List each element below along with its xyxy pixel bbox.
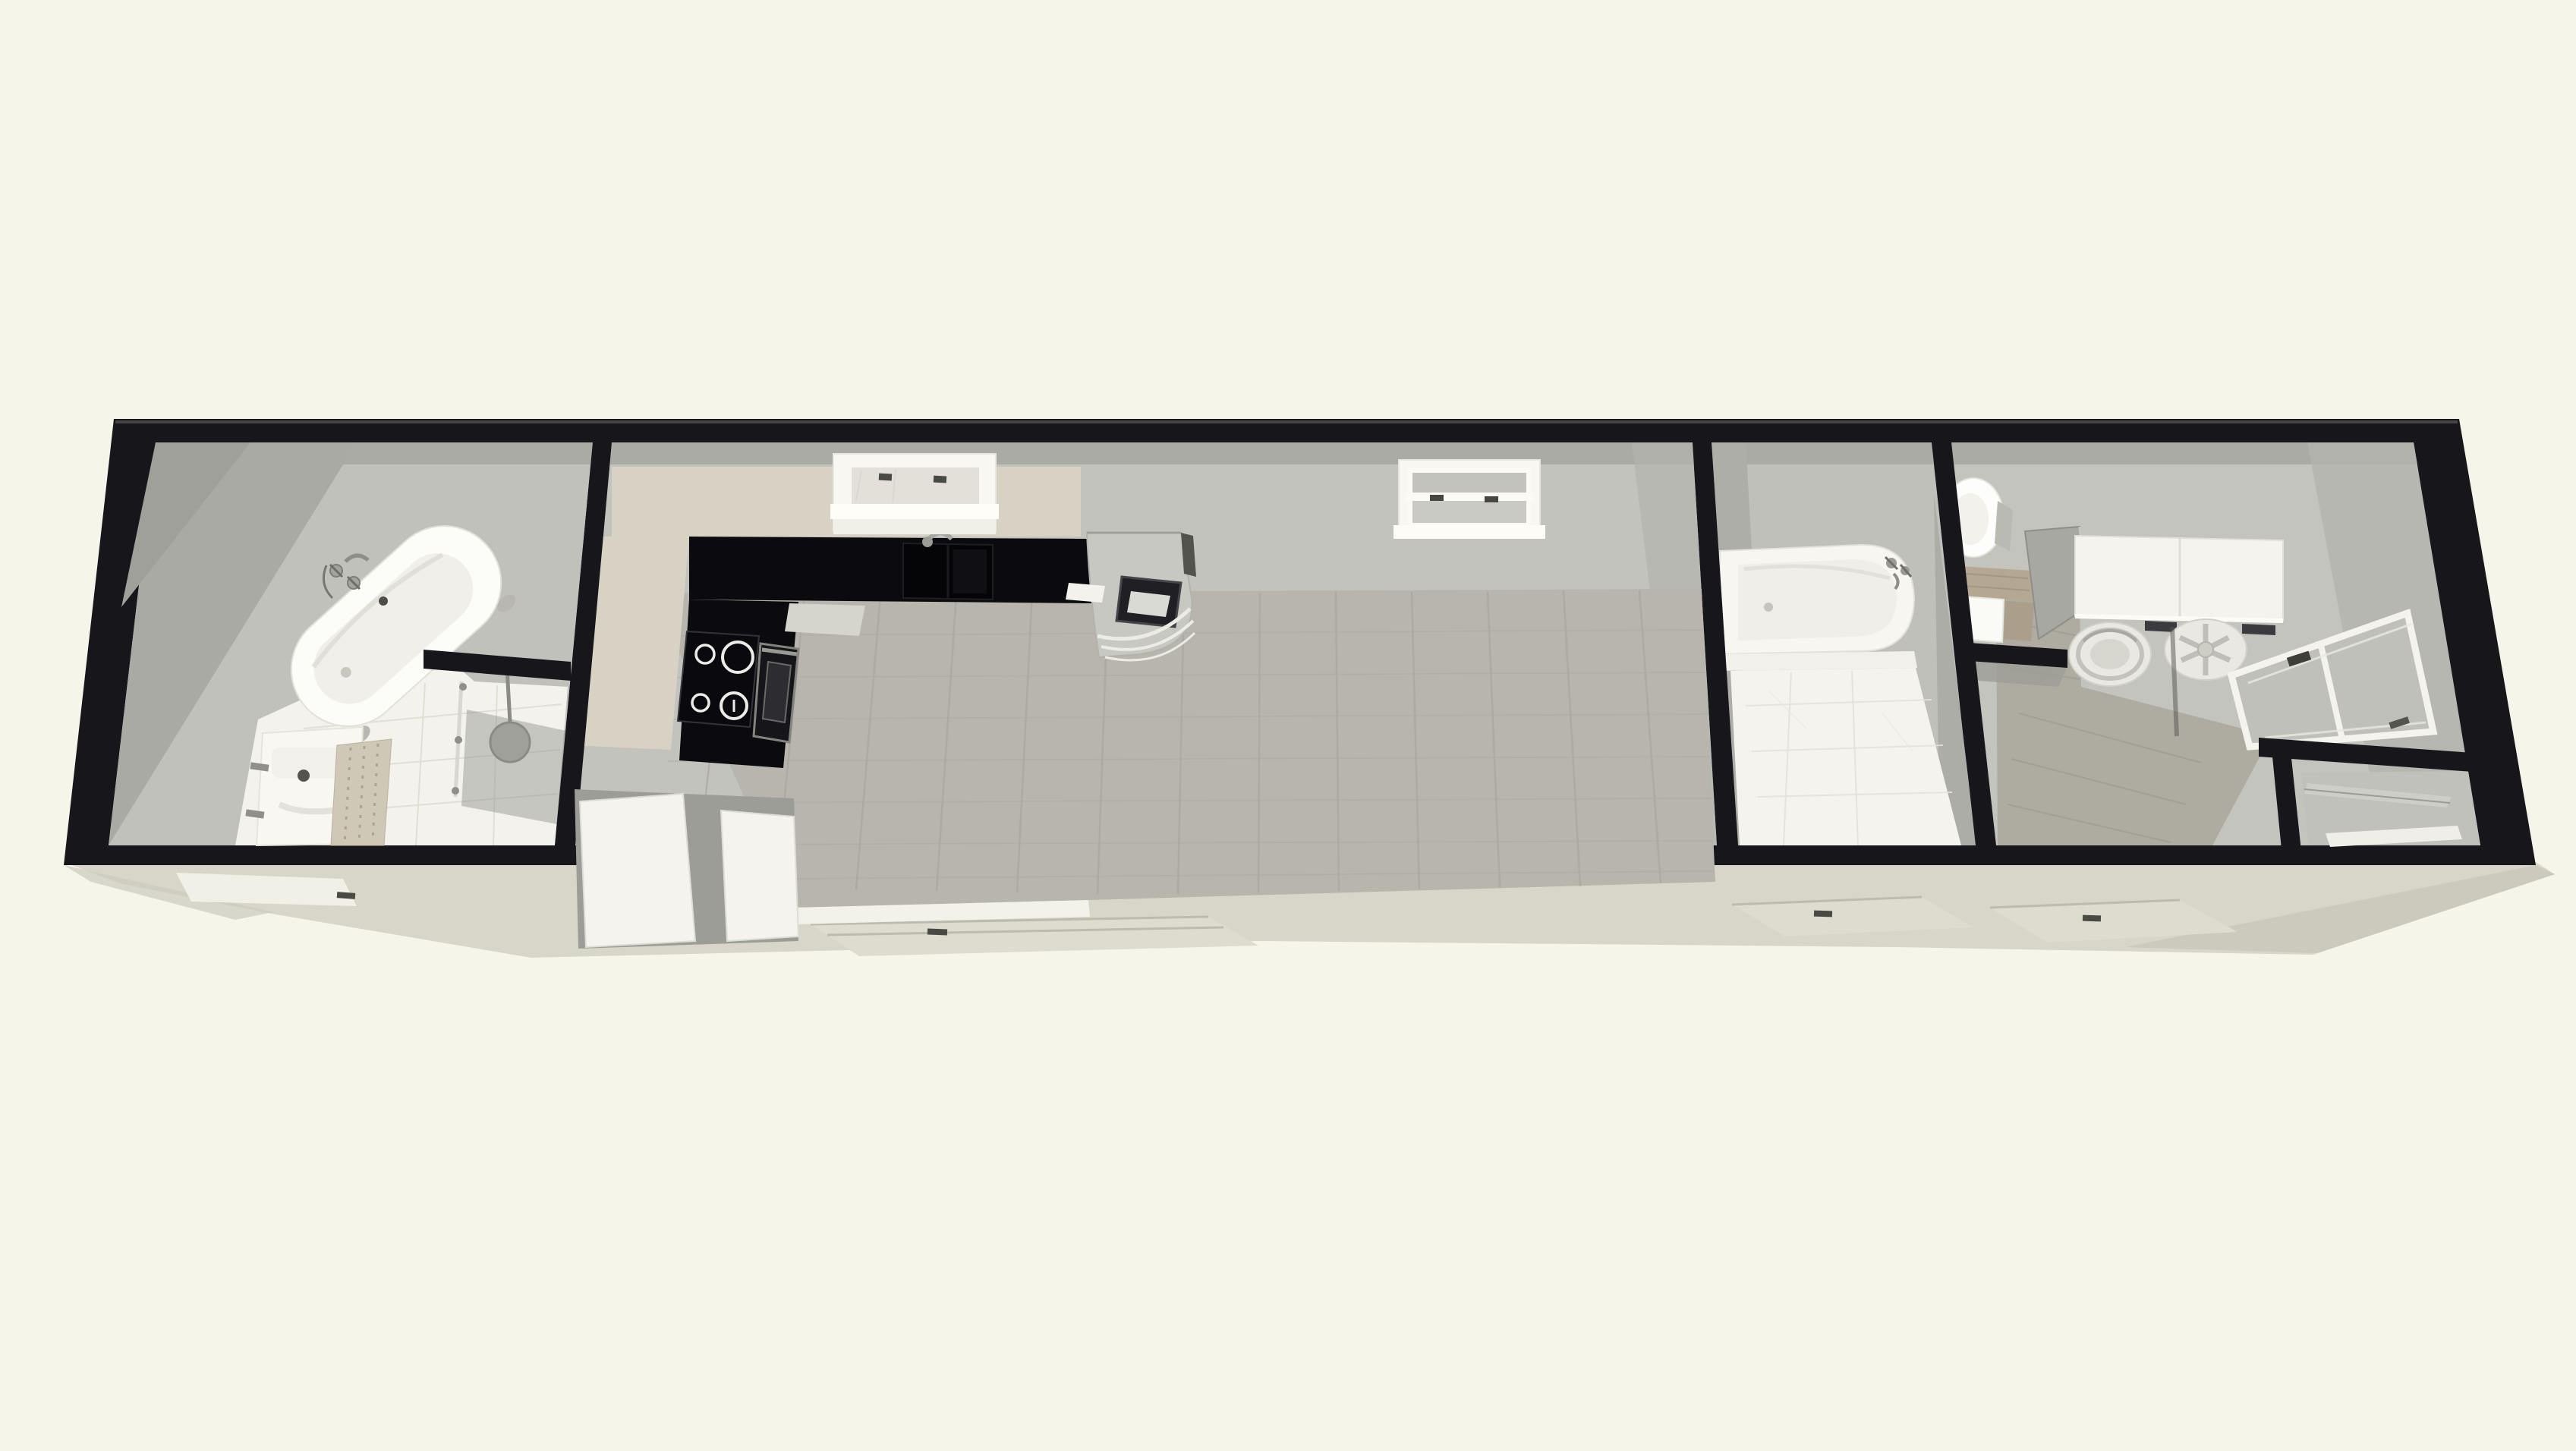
counter-top bbox=[1958, 566, 2034, 601]
machine-vent bbox=[2242, 624, 2275, 635]
sill-front bbox=[833, 519, 996, 534]
toilet-tank-shadow bbox=[1995, 501, 2013, 551]
upper-sash bbox=[1410, 471, 1529, 495]
wood-slat-mat[interactable] bbox=[331, 739, 392, 845]
counter-tray bbox=[1066, 583, 1105, 603]
door-handle-icon bbox=[927, 929, 947, 936]
entry-vestibule bbox=[2301, 771, 2480, 847]
kitchen-cutaway-cabinets bbox=[575, 789, 798, 949]
window-glass bbox=[852, 467, 979, 504]
base-cabinet-box bbox=[721, 810, 798, 941]
glass-hinge bbox=[452, 787, 459, 795]
window-handle-icon bbox=[934, 476, 946, 483]
floorplan-canvas[interactable] bbox=[0, 0, 2576, 1451]
window-sill bbox=[830, 504, 999, 519]
countertop-top-run[interactable] bbox=[689, 537, 1091, 603]
wall-oven[interactable] bbox=[754, 644, 798, 742]
counter-side bbox=[2004, 601, 2034, 641]
rain-shower-head-icon bbox=[490, 722, 530, 762]
tub-drain bbox=[1764, 603, 1773, 612]
glass-hinge bbox=[459, 683, 467, 691]
sink-bowl bbox=[953, 549, 987, 593]
window-handle-icon bbox=[1430, 495, 1444, 501]
meeting-rail bbox=[1406, 493, 1533, 501]
kitchen-window[interactable] bbox=[830, 454, 999, 534]
ceiling-strip bbox=[156, 442, 2417, 464]
door-handle-icon bbox=[2083, 915, 2101, 922]
door-handle-icon bbox=[1814, 911, 1832, 917]
window-handle-icon bbox=[879, 474, 892, 481]
tub-apron bbox=[1720, 651, 1917, 671]
tub-interior bbox=[1738, 559, 1897, 641]
laundry-cabinets[interactable] bbox=[2075, 536, 2283, 621]
cooktop[interactable] bbox=[678, 631, 759, 727]
door-handle-icon bbox=[337, 892, 355, 899]
washing-machine[interactable] bbox=[2069, 622, 2151, 686]
oven-screen-glass bbox=[1127, 591, 1170, 617]
glass-hinge bbox=[455, 736, 462, 744]
living-room-window[interactable] bbox=[1393, 460, 1545, 539]
faucet-base bbox=[922, 537, 933, 547]
overflow-dot bbox=[379, 596, 388, 606]
counter-end-panel bbox=[785, 603, 865, 636]
wood-floor bbox=[653, 589, 1715, 924]
dryer-hub bbox=[2198, 642, 2213, 657]
window-handle-icon bbox=[1485, 496, 1498, 502]
floorplan-3d-render bbox=[0, 0, 2576, 1451]
slat-mat-body bbox=[331, 739, 392, 845]
basin-drain bbox=[298, 770, 310, 782]
washer-drum bbox=[2090, 639, 2130, 669]
lower-sash bbox=[1410, 498, 1529, 525]
base-cabinet-box bbox=[580, 794, 695, 947]
built-in-bathtub[interactable] bbox=[1720, 545, 1917, 671]
window-sill bbox=[1393, 525, 1545, 539]
